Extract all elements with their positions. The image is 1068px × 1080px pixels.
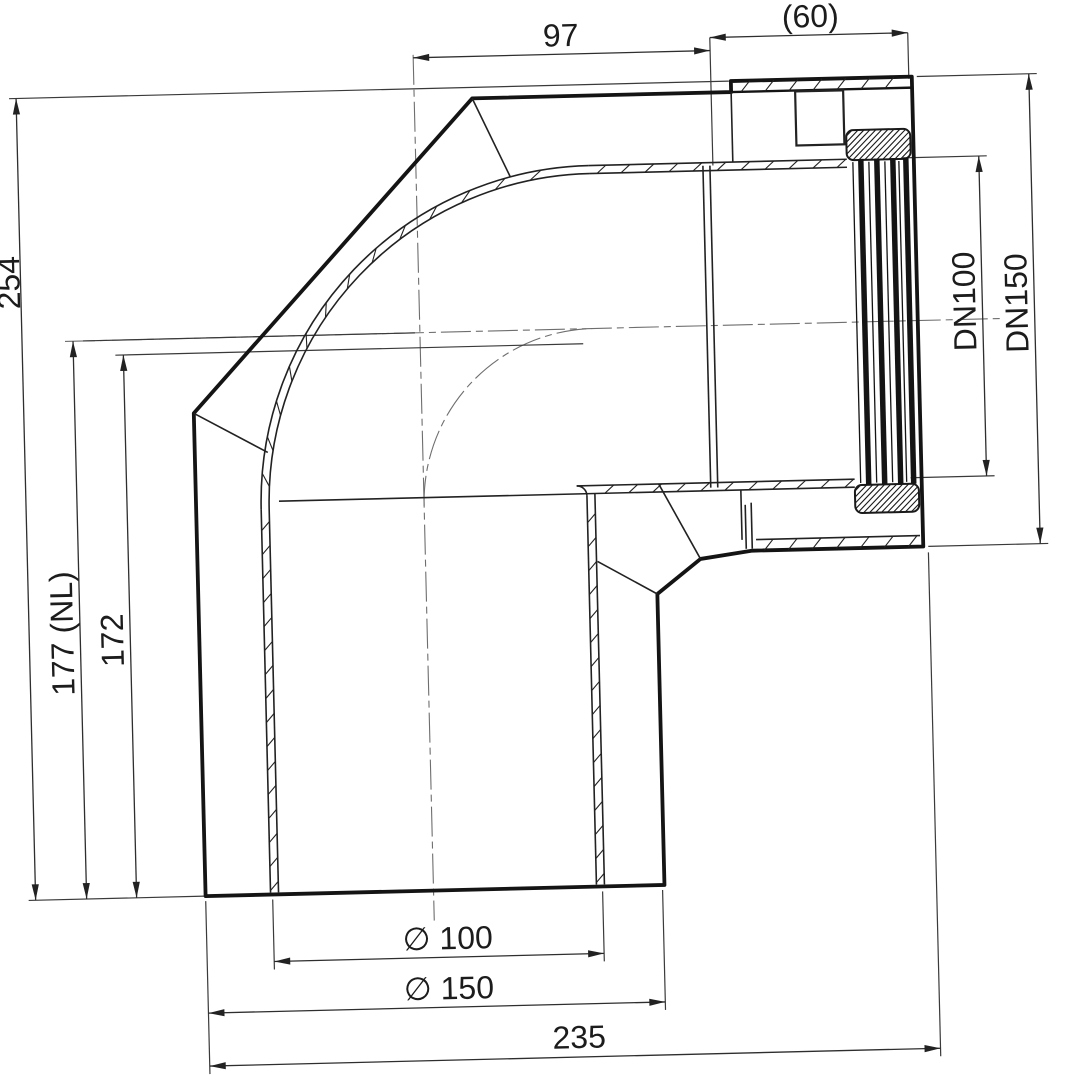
dim-label-254: 254	[0, 256, 27, 310]
miter-joint-lower-right-a	[598, 560, 658, 595]
inner-pipe-rim-line	[279, 487, 855, 501]
dim-label-235: 235	[552, 1018, 606, 1055]
outer-shell-outline	[186, 77, 931, 896]
dim-label-dn150: DN150	[997, 253, 1035, 353]
vertical-centerline	[413, 55, 434, 921]
bend-outer-arc	[253, 166, 597, 510]
socket-seal-gasket	[816, 128, 945, 514]
miter-joint-lower-right-b	[659, 483, 701, 560]
dim-line-254	[16, 99, 36, 901]
miter-joint-upper	[472, 97, 510, 177]
outer-contour	[186, 77, 931, 896]
drawing-page: 97 (60) 254 177 (NL) 172 DN100 DN150 ∅ 1…	[0, 0, 1068, 1080]
dim-label-dia150: ∅ 150	[403, 969, 494, 1007]
dim-label-97: 97	[542, 17, 578, 54]
extension-lines	[8, 30, 1061, 1079]
bend-inner-arc	[261, 174, 597, 510]
dim-label-172: 172	[94, 613, 131, 667]
miter-joint-lower-left	[194, 411, 268, 454]
socket-lock-notch	[795, 90, 844, 145]
dim-label-dn100: DN100	[945, 251, 983, 351]
dim-label-dia100: ∅ 100	[402, 919, 493, 957]
flue-elbow-technical-drawing: 97 (60) 254 177 (NL) 172 DN100 DN150 ∅ 1…	[0, 0, 1068, 1080]
dimension-lines	[15, 30, 1053, 1070]
inner-pipe-and-joints	[186, 88, 928, 894]
dim-label-177-nl: 177 (NL)	[43, 571, 82, 696]
dim-label-60: (60)	[781, 0, 839, 35]
bend-centerline-arc	[420, 328, 597, 505]
wall-section-hatch-ticks	[251, 77, 925, 891]
